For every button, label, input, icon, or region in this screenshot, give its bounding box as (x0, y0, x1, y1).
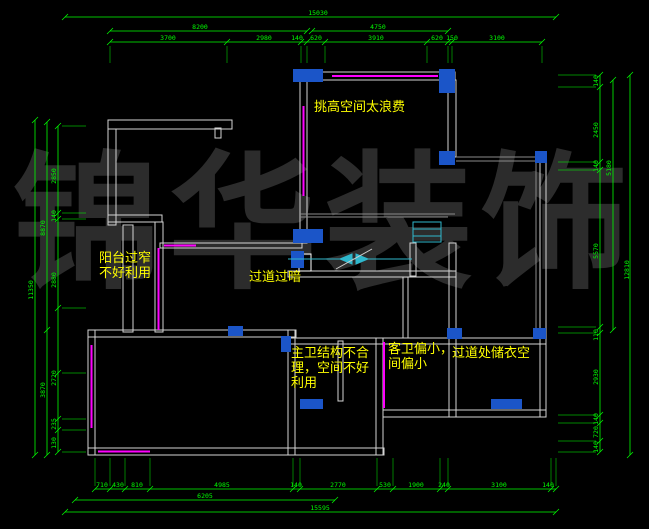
dim-label: 530 (379, 481, 391, 489)
note-guest-bath: 客卫偏小， 间偏小 (388, 343, 453, 373)
dim-label: 3100 (491, 481, 507, 489)
dim-label: 3870 (39, 382, 47, 398)
dim-label: 150 (446, 34, 458, 42)
walls-layer (88, 72, 546, 455)
stair-direction-arrow (356, 254, 368, 264)
dim-label: 235 (50, 418, 58, 430)
dim-label: 15595 (310, 504, 330, 512)
note-corridor-dark: 过道过暗 (249, 271, 301, 286)
dim-label: 5570 (592, 243, 600, 259)
dim-label: 8870 (39, 220, 47, 236)
dim-label: 2980 (256, 34, 272, 42)
dim-label: 11350 (27, 280, 35, 300)
dim-label: 4750 (370, 23, 386, 31)
dim-label: 3700 (160, 34, 176, 42)
dim-label: 620 (310, 34, 322, 42)
dim-label: 720 (592, 426, 600, 438)
dim-label: 430 (112, 481, 124, 489)
dim-label: 6205 (197, 492, 213, 500)
note-tall-space: 挑高空间太浪费 (314, 101, 405, 116)
cad-canvas[interactable]: 锦华装饰 (0, 0, 649, 529)
stair-direction-arrow (340, 254, 352, 264)
dim-label: 2770 (330, 481, 346, 489)
dim-label: 8200 (192, 23, 208, 31)
dim-label: 240 (438, 481, 450, 489)
terrace-lines-layer (300, 157, 540, 330)
dim-label: 2930 (592, 369, 600, 385)
dim-label: 110 (592, 329, 600, 341)
note-balcony: 阳台过窄 不好利用 (99, 252, 151, 282)
dim-label: 710 (96, 481, 108, 489)
dim-label: 810 (131, 481, 143, 489)
dim-label: 3100 (489, 34, 505, 42)
dim-label: 620 (431, 34, 443, 42)
dim-label: 5180 (605, 160, 613, 176)
note-master-bath: 主卫结构不合 理，空间不好 利用 (291, 347, 369, 392)
dim-label: 3910 (368, 34, 384, 42)
dim-label: 140 (592, 75, 600, 87)
dim-label: 140 (50, 210, 58, 222)
dim-label: 140 (592, 160, 600, 172)
dim-label: 140 (291, 34, 303, 42)
dim-label: 2850 (50, 168, 58, 184)
dim-label: 2720 (50, 370, 58, 386)
dim-label: 140 (592, 441, 600, 453)
dim-label: 140 (290, 481, 302, 489)
note-closet: 过道处储衣空 (452, 347, 530, 362)
dim-label: 130 (50, 437, 58, 449)
dim-label: 1900 (408, 481, 424, 489)
dim-label: 2450 (592, 122, 600, 138)
dim-label: 2880 (50, 272, 58, 288)
dim-label: 12810 (623, 260, 631, 280)
floorplan-drawing: 1503082004750370029801406203910620150310… (0, 0, 649, 529)
dim-label: 140 (542, 481, 554, 489)
dim-label: 140 (592, 413, 600, 425)
dim-label: 15030 (308, 9, 328, 17)
dim-label: 4985 (214, 481, 230, 489)
